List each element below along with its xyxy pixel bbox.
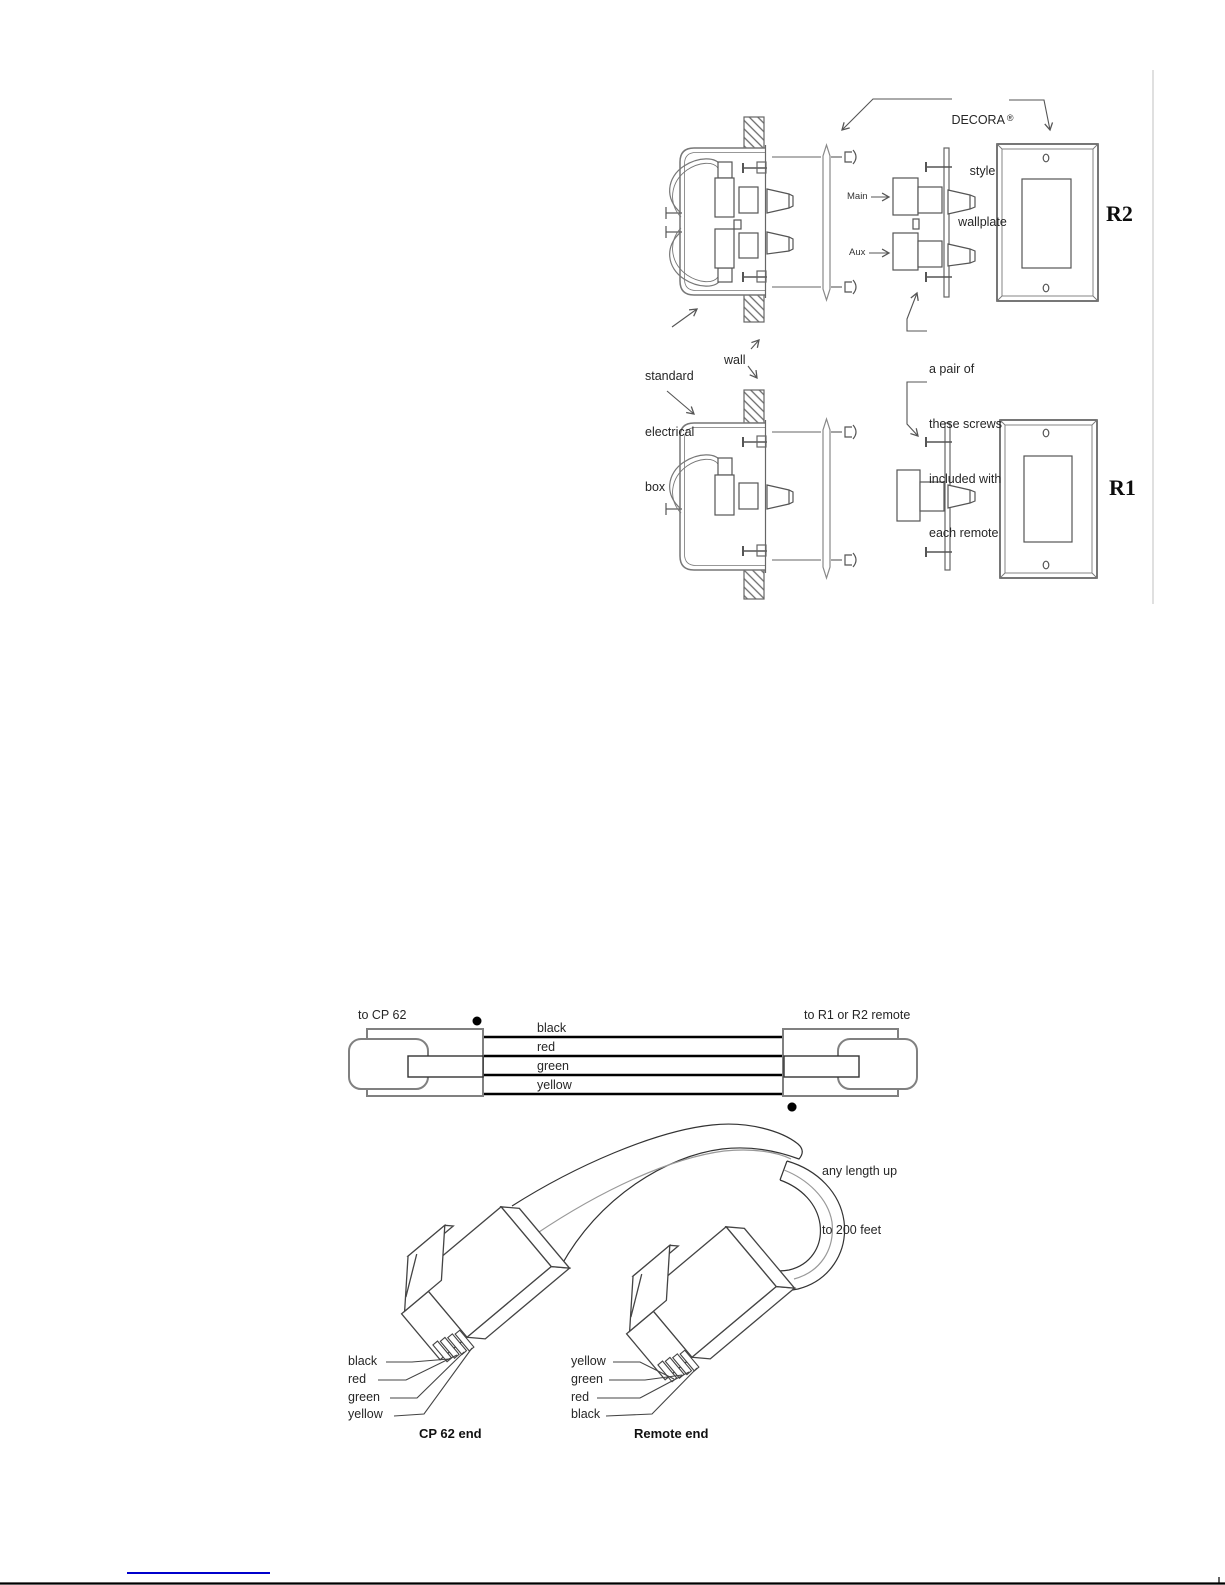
remote-pin-label-black: black [571,1408,600,1421]
schematic-left-end-label: to CP 62 [358,1006,406,1024]
wire-label-black: black [537,1022,566,1035]
remote-pin-label-red: red [571,1391,589,1404]
remote-end-caption: Remote end [634,1427,708,1441]
cable-length-note: any length up to 200 feet [822,1123,897,1260]
cp62-pin-label-red: red [348,1373,366,1386]
wallplate-callout-line3: wallplate [920,214,1045,231]
main-port-label: Main [847,191,868,202]
screws-callout: a pair of these screws included with eac… [929,324,1002,561]
wire-label-red: red [537,1041,555,1054]
remote-r1-label: R1 [1109,477,1136,499]
cable-schematic-art [349,1017,917,1112]
wallplate-callout: DECORA® style wallplate [920,76,1045,248]
connector-key-dot [473,1017,482,1026]
registered-mark: ® [1007,113,1014,123]
cp62-pin-label-yellow: yellow [348,1408,383,1421]
manual-page: DECORA® style wallplate Main Aux standar… [0,0,1225,1585]
cp62-end-caption: CP 62 end [419,1427,482,1441]
remote-pin-label-yellow: yellow [571,1355,606,1368]
wall-callout: wall [724,351,746,369]
connector-key-dot [788,1103,797,1112]
wallplate-callout-line2: style [920,163,1045,180]
cable-drawing-art [376,1103,845,1417]
page-bottom-border [0,1577,1225,1584]
electrical-box-callout: standard electrical box [645,330,694,515]
r1-assembly-art [666,390,1097,599]
cp62-pin-label-green: green [348,1391,380,1404]
wallplate-callout-brand-line: DECORA® [920,110,1045,129]
schematic-right-end-label: to R1 or R2 remote [804,1006,910,1024]
wire-label-green: green [537,1060,569,1073]
remote-r2-label: R2 [1106,203,1133,225]
remote-pin-label-green: green [571,1373,603,1386]
wire-label-yellow: yellow [537,1079,572,1092]
footer-link-underline[interactable] [127,1572,270,1574]
aux-port-label: Aux [849,247,865,258]
cp62-pin-label-black: black [348,1355,377,1368]
